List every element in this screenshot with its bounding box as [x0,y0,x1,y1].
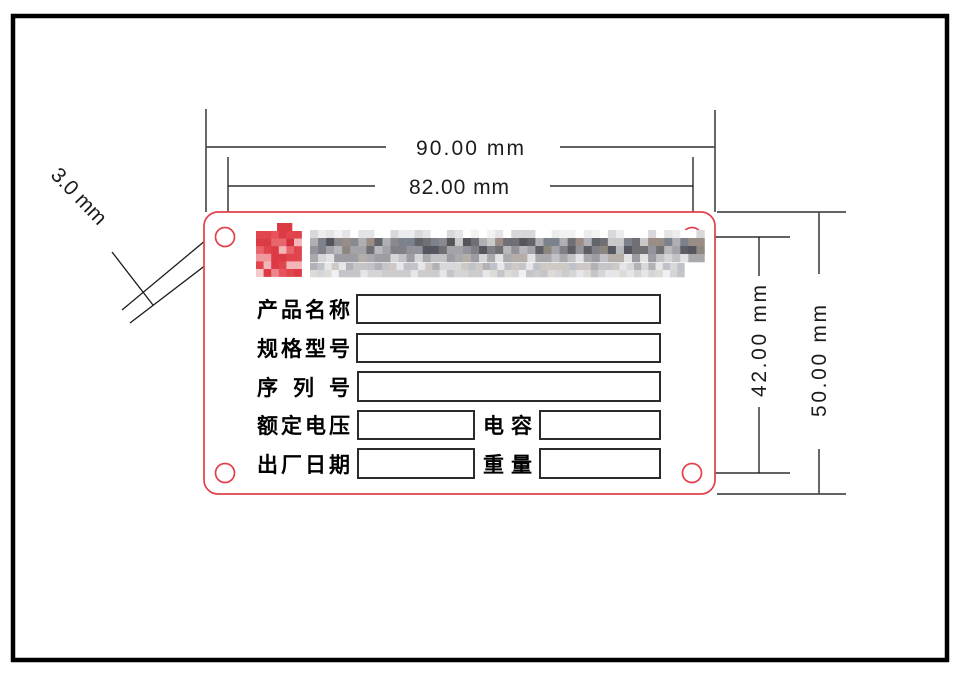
field-box-capacitance [540,411,660,439]
dim-text-outer-height: 50.00 mm [808,305,831,417]
hole-leader-dim-line [112,252,153,305]
mounting-hole-bottom-right [683,464,702,483]
field-box-manufacture-date [358,449,474,478]
field-box-weight [540,449,660,478]
company-line1-mosaic [310,230,705,262]
mounting-hole-bottom-left [216,464,235,483]
dim-text-hole-spacing-width: 82.00 mm [409,176,509,199]
nameplate-drawing-page: 90.00 mm 82.00 mm 42.00 mm 50.00 mm 3.0 … [0,0,960,678]
field-label-serial-number: 序 列 号 [257,376,350,400]
field-box-rated-voltage [358,411,474,439]
dim-text-outer-width: 90.00 mm [416,137,524,160]
drawing-canvas: 90.00 mm 82.00 mm 42.00 mm 50.00 mm 3.0 … [0,0,960,678]
dim-text-hole-diameter: 3.0 mm [46,163,111,229]
field-box-model [357,334,660,362]
field-box-serial-number [358,372,660,401]
field-box-product-name [357,295,660,323]
company-line2-mosaic [310,263,685,277]
dim-text-hole-spacing-height: 42.00 mm [748,285,771,397]
logo-mark-mosaic [256,231,302,277]
logo-tab-mosaic [277,223,292,232]
mounting-hole-top-left [216,228,235,247]
